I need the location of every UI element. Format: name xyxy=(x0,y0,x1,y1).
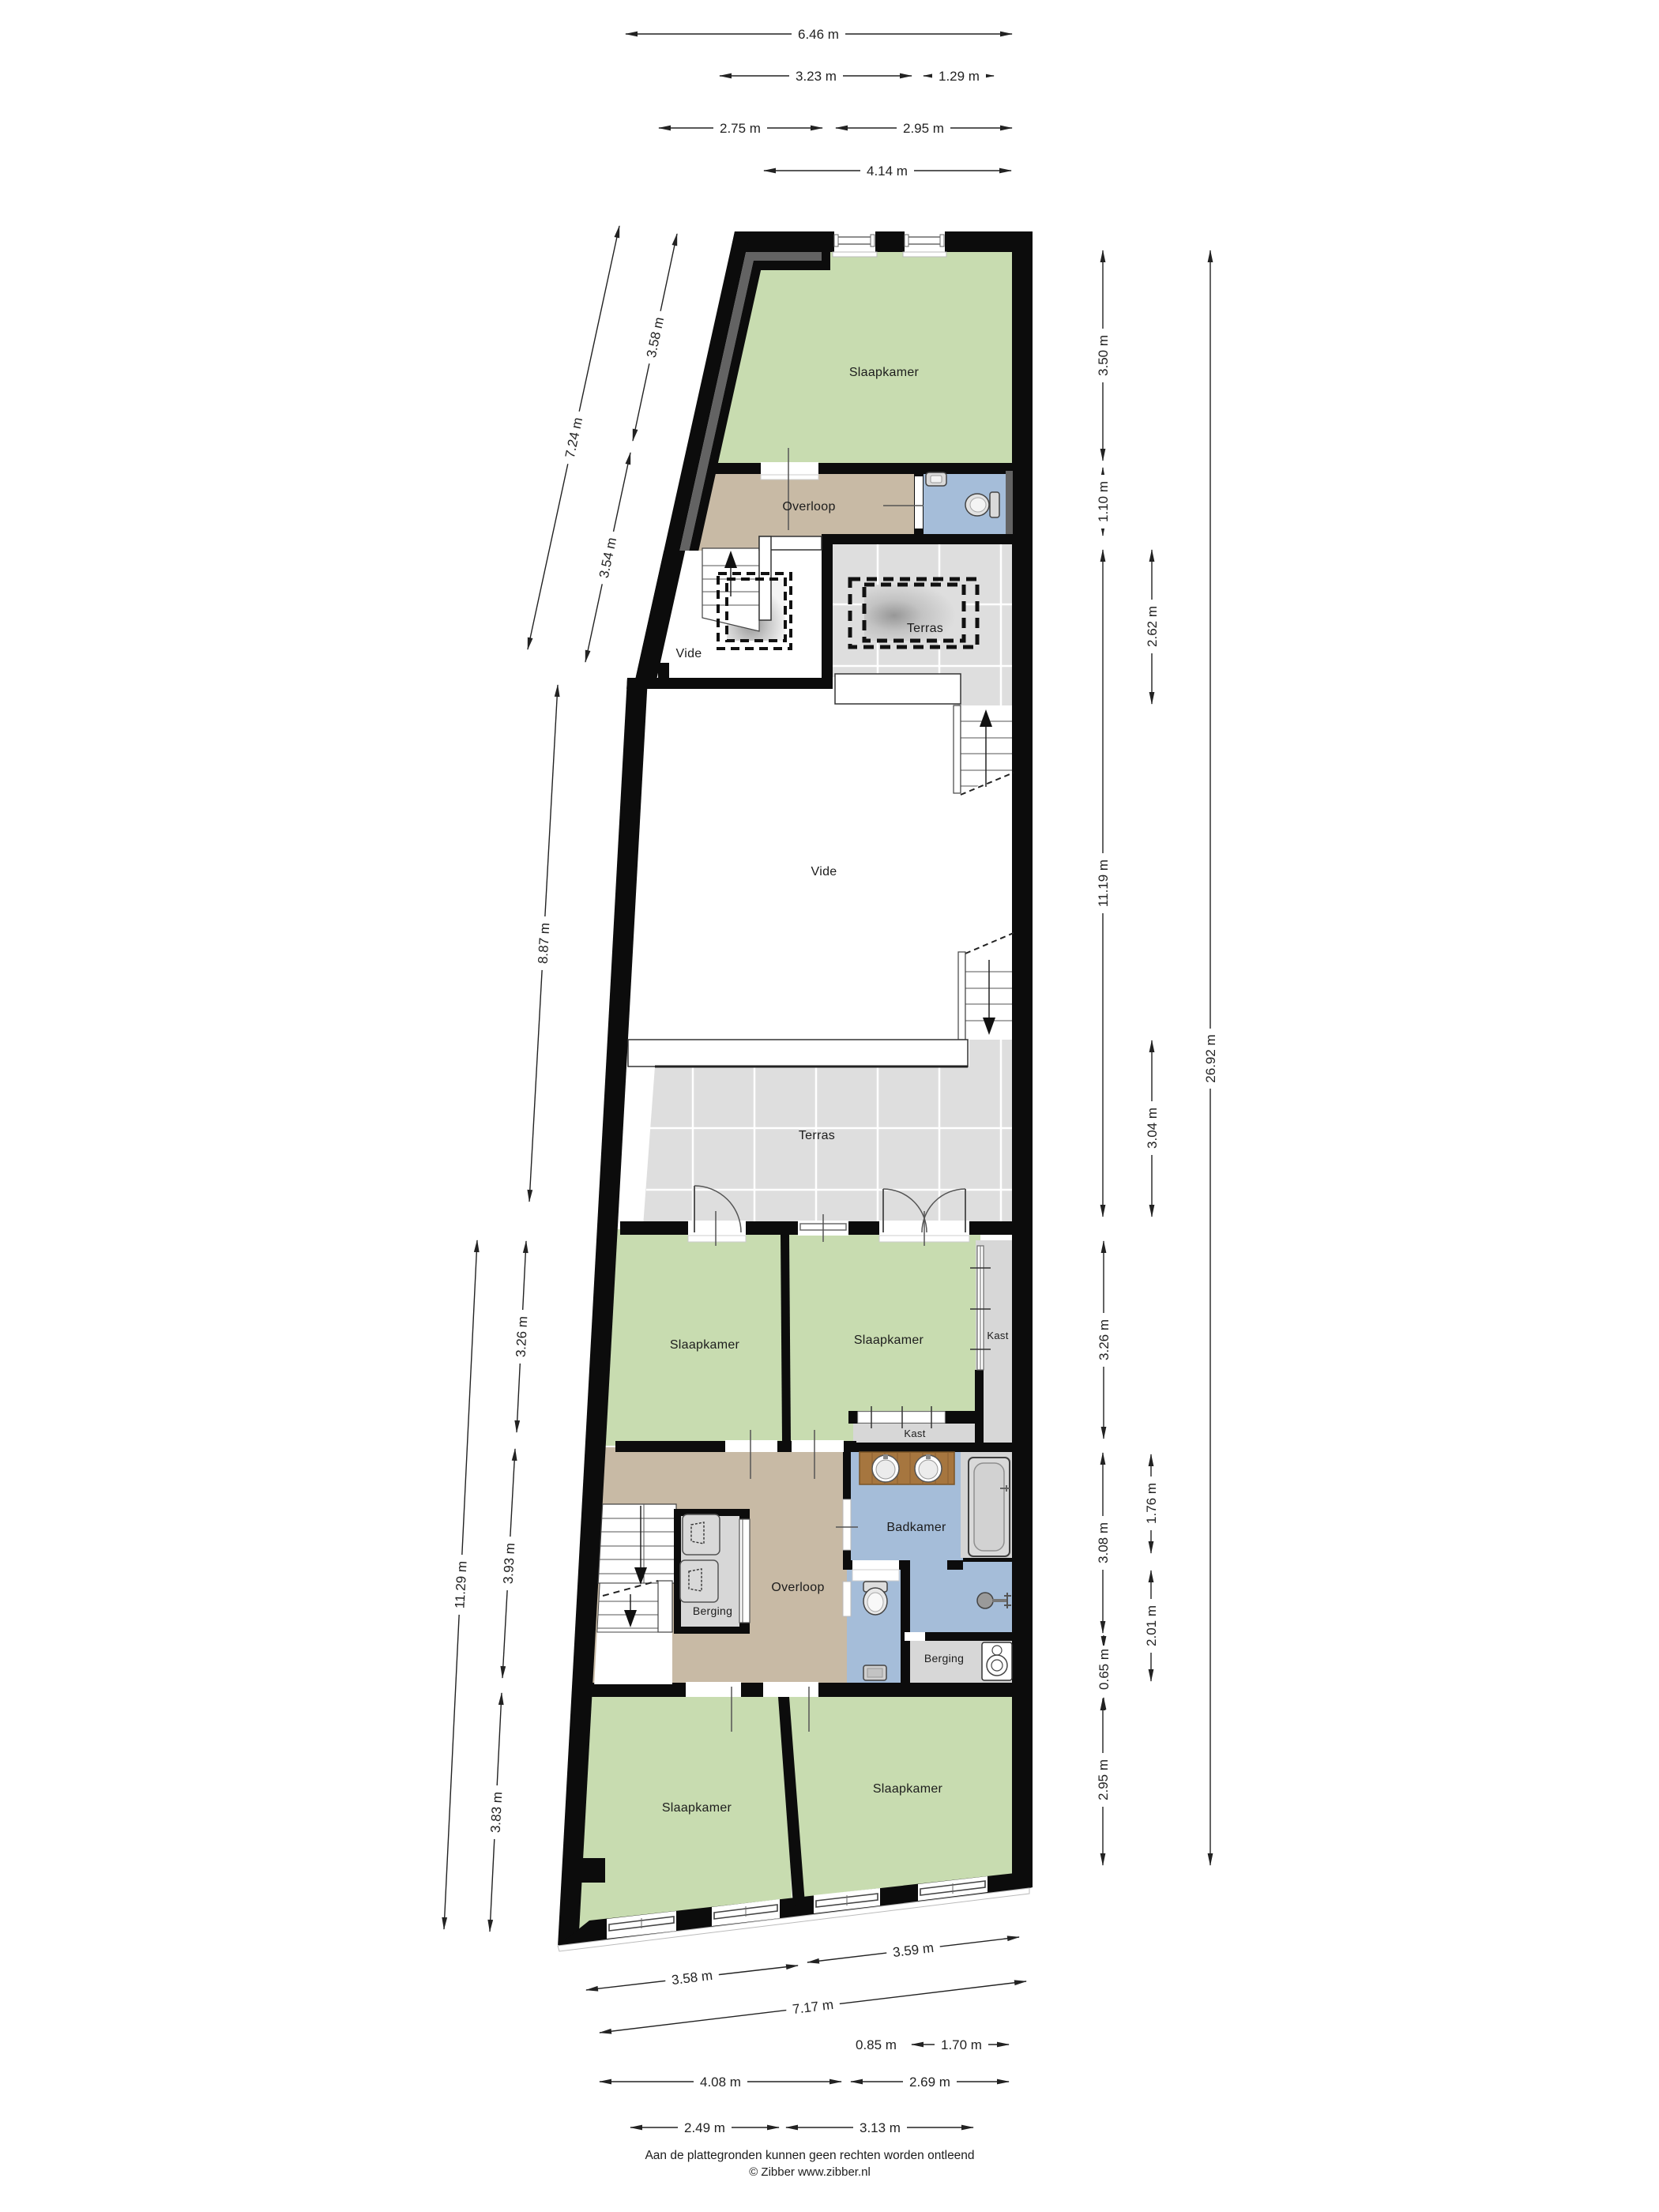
svg-text:Slaapkamer: Slaapkamer xyxy=(670,1338,740,1352)
svg-text:2.69 m: 2.69 m xyxy=(909,2075,950,2090)
svg-text:6.46 m: 6.46 m xyxy=(798,27,839,42)
svg-text:11.29 m: 11.29 m xyxy=(452,1560,469,1608)
svg-text:8.87 m: 8.87 m xyxy=(536,923,553,965)
svg-text:3.04 m: 3.04 m xyxy=(1145,1108,1160,1149)
svg-text:3.26 m: 3.26 m xyxy=(1097,1319,1112,1360)
svg-text:Berging: Berging xyxy=(693,1604,732,1617)
svg-text:1.29 m: 1.29 m xyxy=(939,69,980,84)
svg-text:2.95 m: 2.95 m xyxy=(903,121,944,136)
svg-text:3.23 m: 3.23 m xyxy=(796,69,837,84)
svg-text:2.75 m: 2.75 m xyxy=(720,121,761,136)
svg-text:Overloop: Overloop xyxy=(771,1581,824,1594)
svg-text:1.70 m: 1.70 m xyxy=(941,2037,982,2052)
svg-text:Kast: Kast xyxy=(904,1428,925,1439)
svg-text:4.08 m: 4.08 m xyxy=(700,2075,741,2090)
svg-text:3.26 m: 3.26 m xyxy=(513,1316,531,1358)
svg-text:Terras: Terras xyxy=(799,1129,835,1142)
svg-text:2.95 m: 2.95 m xyxy=(1096,1759,1111,1800)
svg-text:3.08 m: 3.08 m xyxy=(1096,1522,1111,1563)
svg-text:1.10 m: 1.10 m xyxy=(1096,481,1111,522)
svg-text:Vide: Vide xyxy=(811,865,837,878)
svg-text:Badkamer: Badkamer xyxy=(886,1521,946,1534)
svg-text:Aan de plattegronden kunnen ge: Aan de plattegronden kunnen geen rechten… xyxy=(645,2149,974,2162)
svg-text:2.49 m: 2.49 m xyxy=(684,2120,725,2135)
svg-text:3.83 m: 3.83 m xyxy=(488,1792,506,1834)
svg-text:2.01 m: 2.01 m xyxy=(1144,1605,1159,1646)
svg-text:3.93 m: 3.93 m xyxy=(501,1543,518,1585)
svg-text:Terras: Terras xyxy=(907,622,943,635)
svg-text:2.62 m: 2.62 m xyxy=(1145,606,1160,647)
svg-text:26.92 m: 26.92 m xyxy=(1203,1034,1218,1082)
svg-text:Slaapkamer: Slaapkamer xyxy=(854,1334,924,1347)
svg-text:0.65 m: 0.65 m xyxy=(1097,1649,1112,1690)
svg-text:Slaapkamer: Slaapkamer xyxy=(849,366,920,379)
svg-text:3.50 m: 3.50 m xyxy=(1096,335,1111,376)
svg-text:Kast: Kast xyxy=(987,1330,1008,1341)
svg-text:© Zibber www.zibber.nl: © Zibber www.zibber.nl xyxy=(749,2165,871,2179)
svg-text:3.13 m: 3.13 m xyxy=(860,2120,901,2135)
svg-text:1.76 m: 1.76 m xyxy=(1144,1483,1159,1524)
svg-text:11.19 m: 11.19 m xyxy=(1096,860,1111,907)
svg-text:4.14 m: 4.14 m xyxy=(867,164,908,179)
svg-text:0.85 m: 0.85 m xyxy=(856,2037,897,2052)
svg-text:Slaapkamer: Slaapkamer xyxy=(873,1782,943,1796)
svg-text:Overloop: Overloop xyxy=(782,500,835,513)
svg-text:Vide: Vide xyxy=(676,647,702,660)
svg-text:Slaapkamer: Slaapkamer xyxy=(662,1801,732,1815)
svg-text:Berging: Berging xyxy=(924,1652,964,1665)
